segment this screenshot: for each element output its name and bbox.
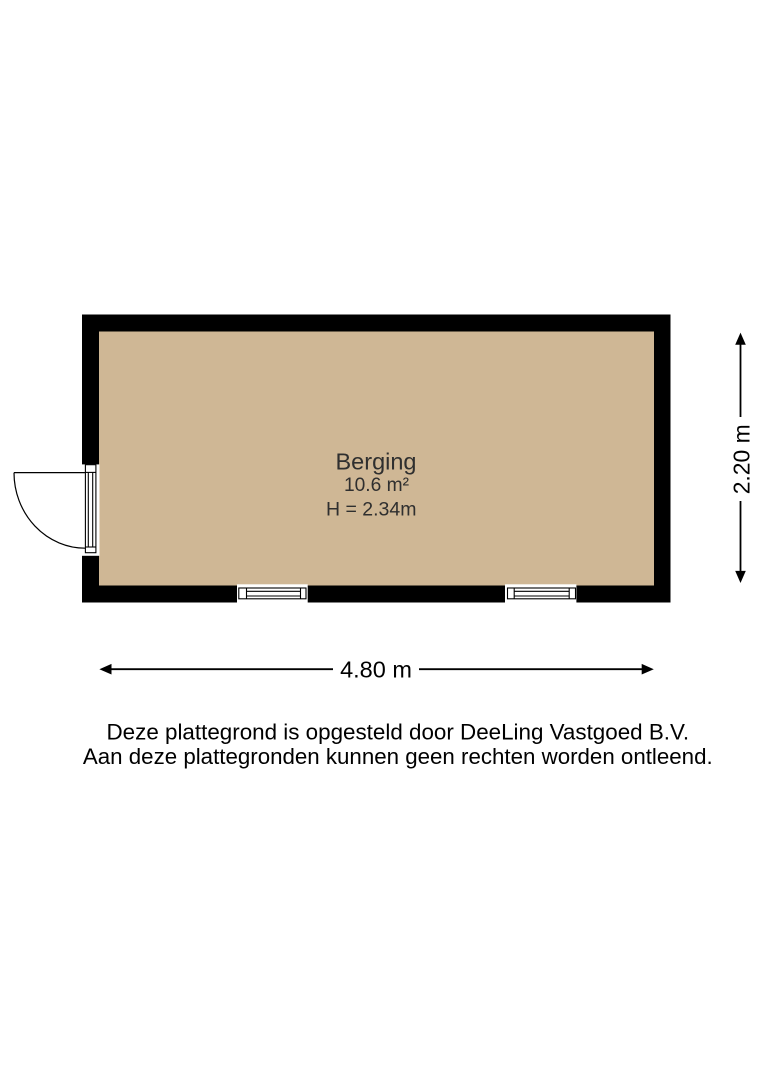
svg-text:H = 2.34m: H = 2.34m — [326, 499, 417, 521]
svg-text:4.80 m: 4.80 m — [340, 657, 412, 683]
svg-text:2.20 m: 2.20 m — [728, 424, 754, 494]
svg-text:Berging: Berging — [336, 449, 417, 475]
svg-text:Deze plattegrond is opgesteld: Deze plattegrond is opgesteld door DeeLi… — [107, 720, 690, 745]
svg-text:10.6 m²: 10.6 m² — [344, 475, 410, 496]
svg-text:Aan deze plattegronden kunnen: Aan deze plattegronden kunnen geen recht… — [83, 744, 713, 769]
